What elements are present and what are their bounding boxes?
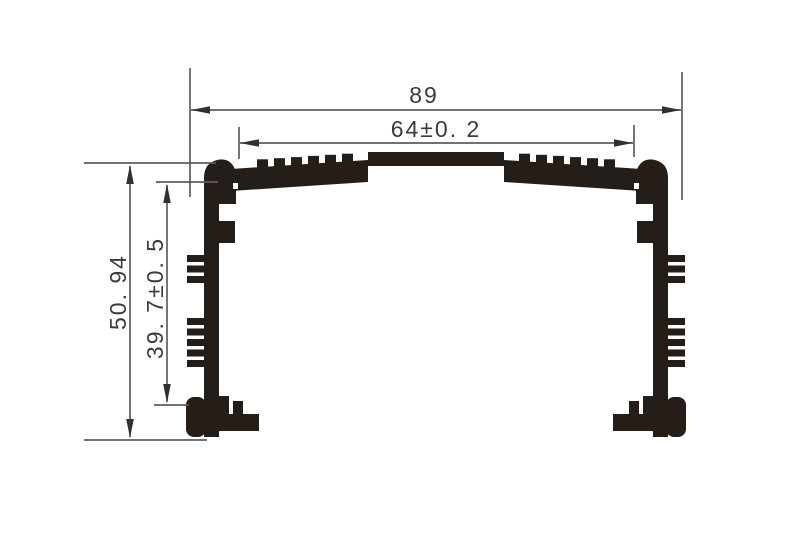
profile-tooth bbox=[308, 156, 319, 169]
dimension-label-overall-width: 89 bbox=[409, 82, 439, 108]
profile-fin bbox=[667, 276, 685, 283]
profile-tooth bbox=[325, 155, 336, 168]
profile-right-foot-flange bbox=[613, 414, 653, 431]
profile-fin bbox=[187, 318, 205, 325]
profile-tooth bbox=[604, 159, 615, 172]
profile-notch bbox=[233, 183, 238, 189]
profile-fin bbox=[187, 266, 205, 273]
profile-fin bbox=[187, 255, 205, 262]
profile-fin bbox=[187, 350, 205, 357]
profile-fin bbox=[187, 276, 205, 283]
dimension-label-slot-width: 64±0. 2 bbox=[391, 116, 482, 142]
profile-left-foot-tooth bbox=[219, 396, 229, 416]
profile-fin bbox=[667, 350, 685, 357]
profile-tooth bbox=[274, 158, 285, 171]
profile-left-foot-flange bbox=[219, 414, 259, 431]
profile-fin bbox=[667, 318, 685, 325]
profile-right-wall bbox=[653, 185, 668, 437]
profile-fin bbox=[667, 255, 685, 262]
profile-left-wall bbox=[204, 185, 219, 437]
technical-drawing-page: 89 64±0. 2 50. 94 39. 7±0. 5 bbox=[0, 0, 800, 540]
profile-fin bbox=[667, 329, 685, 336]
profile-top-wall-center bbox=[368, 152, 504, 166]
profile-fin bbox=[667, 360, 685, 367]
profile-tooth bbox=[257, 159, 268, 172]
profile-fin bbox=[667, 339, 685, 346]
profile-right-foot-boss bbox=[666, 397, 686, 437]
profile-tooth bbox=[570, 157, 581, 170]
profile-fin bbox=[187, 329, 205, 336]
profile-right-inner-hook bbox=[637, 221, 653, 243]
profile-left-foot-boss bbox=[186, 397, 206, 437]
profile-fin bbox=[667, 266, 685, 273]
profile-tooth bbox=[553, 156, 564, 169]
profile-left-inner-hook bbox=[219, 221, 235, 243]
dimension-label-overall-height: 50. 94 bbox=[105, 254, 131, 330]
dimension-label-inner-height: 39. 7±0. 5 bbox=[142, 237, 168, 359]
profile-tooth bbox=[536, 155, 547, 168]
profile-fin bbox=[187, 339, 205, 346]
drawing-canvas: 89 64±0. 2 50. 94 39. 7±0. 5 bbox=[0, 0, 800, 540]
profile-tooth bbox=[342, 154, 353, 167]
profile-fin bbox=[187, 360, 205, 367]
profile-tooth bbox=[519, 154, 530, 167]
profile-notch bbox=[634, 183, 639, 189]
profile-tooth bbox=[291, 157, 302, 170]
profile-right-foot-tooth bbox=[643, 396, 653, 416]
profile-tooth bbox=[587, 158, 598, 171]
